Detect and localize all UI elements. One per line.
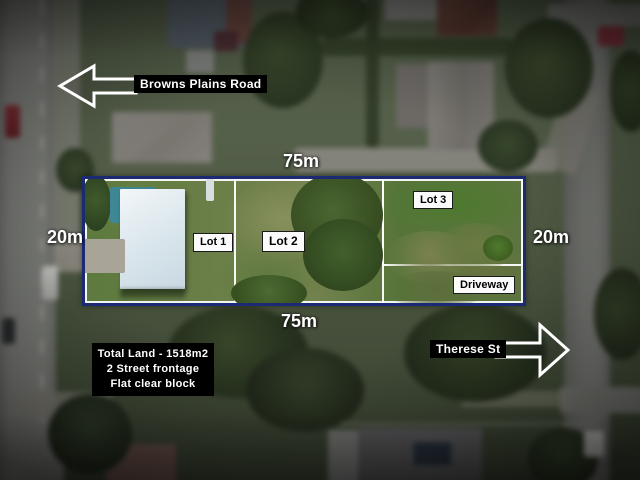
dimension-bottom: 75m	[281, 311, 317, 332]
road-top-label: Browns Plains Road	[134, 75, 267, 93]
lot2-label: Lot 2	[262, 231, 305, 252]
lot3-label: Lot 3	[413, 191, 453, 209]
land-summary-box: Total Land - 1518m2 2 Street frontage Fl…	[92, 343, 214, 396]
aerial-listing-photo: Browns Plains Road 75m 75m 20m 20m Lot 1…	[0, 0, 640, 480]
summary-block-desc: Flat clear block	[94, 377, 212, 392]
left-arrow-icon	[56, 62, 138, 110]
dimension-left: 20m	[47, 227, 83, 248]
lot1-label: Lot 1	[193, 233, 233, 252]
dimension-top: 75m	[283, 151, 319, 172]
street-right-label: Therese St	[430, 340, 506, 358]
driveway-label: Driveway	[453, 276, 515, 294]
dimension-right: 20m	[533, 227, 569, 248]
summary-frontage: 2 Street frontage	[94, 362, 212, 377]
summary-total-land: Total Land - 1518m2	[94, 347, 212, 362]
annotations: Browns Plains Road 75m 75m 20m 20m Lot 1…	[0, 0, 640, 480]
